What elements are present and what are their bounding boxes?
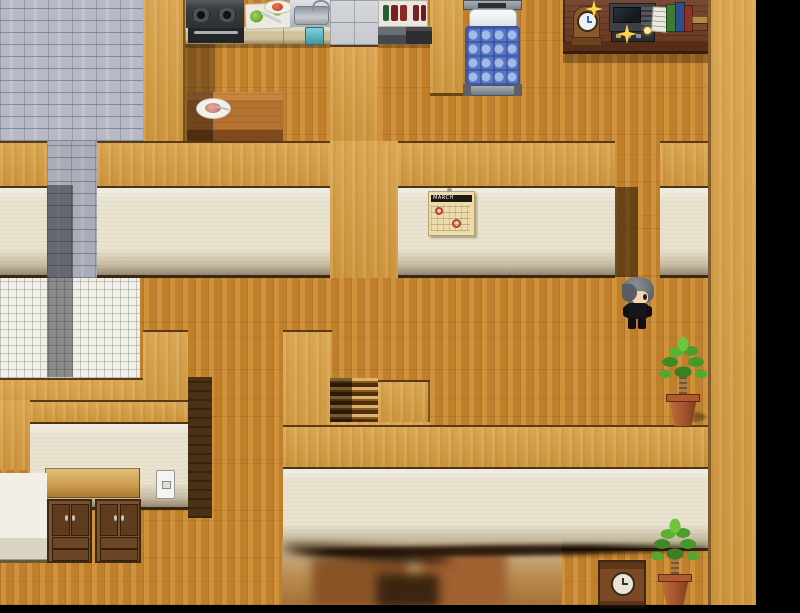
storage-room-wall-top bbox=[30, 400, 188, 422]
button bbox=[636, 34, 641, 38]
plant-pot bbox=[668, 402, 698, 426]
calendar-circled-date bbox=[452, 219, 461, 228]
wall-strip-center-upper bbox=[330, 45, 378, 141]
stove[interactable] bbox=[186, 0, 244, 28]
under-desk-shadow bbox=[563, 53, 712, 63]
floor-clock[interactable] bbox=[598, 560, 646, 610]
plant-leaves bbox=[658, 332, 708, 384]
character-eye bbox=[643, 294, 647, 300]
stairs-shadow bbox=[330, 378, 352, 422]
lower-room-wall-top bbox=[283, 425, 710, 467]
cabinet-drawer bbox=[100, 549, 138, 561]
character-leg bbox=[638, 318, 646, 329]
cabinet-right[interactable] bbox=[95, 499, 141, 563]
books[interactable] bbox=[666, 2, 706, 30]
potted-plant[interactable] bbox=[658, 332, 708, 427]
bottle-shelf[interactable] bbox=[378, 0, 428, 27]
character-arm bbox=[646, 306, 652, 317]
cabinet-drawer bbox=[52, 549, 89, 561]
bottle bbox=[413, 5, 419, 21]
oven-front[interactable] bbox=[188, 28, 244, 43]
game-viewport[interactable]: MARCH bbox=[0, 0, 800, 613]
mantel-clock-base bbox=[571, 37, 602, 46]
calendar-circled-date bbox=[435, 207, 443, 215]
plant-leaves bbox=[650, 514, 700, 566]
tomato bbox=[272, 3, 283, 11]
lower-wall-right-of-stairs bbox=[378, 380, 430, 423]
mantel-clock[interactable] bbox=[571, 6, 600, 44]
potted-plant[interactable] bbox=[650, 514, 700, 607]
water-bin[interactable] bbox=[305, 27, 324, 45]
book-stack bbox=[692, 23, 708, 31]
plant-pot-rim bbox=[666, 394, 700, 402]
character-bang bbox=[622, 284, 637, 301]
wall-face-mid bbox=[97, 186, 332, 278]
food-plate[interactable] bbox=[196, 98, 231, 119]
cabinet-handle bbox=[72, 515, 75, 521]
bed-post bbox=[463, 84, 471, 96]
sink[interactable] bbox=[290, 0, 332, 27]
cabinet-handle bbox=[65, 515, 68, 521]
bed-mattress bbox=[465, 26, 520, 87]
wall-strip-bed-left bbox=[430, 0, 463, 96]
stove-burner bbox=[192, 8, 210, 22]
wall-face-far-right bbox=[660, 186, 708, 278]
bed-label bbox=[478, 3, 506, 8]
wall-strip-kitchen-left bbox=[143, 0, 185, 141]
bottle bbox=[400, 5, 407, 21]
void-bottom bbox=[0, 605, 756, 613]
character-leg bbox=[628, 318, 636, 329]
oven-handle bbox=[194, 31, 238, 34]
white-counter[interactable] bbox=[0, 473, 47, 563]
plant-pot-rim bbox=[658, 574, 692, 582]
bottle bbox=[421, 5, 426, 21]
doorway-shadow bbox=[615, 187, 638, 277]
wall-top-mid bbox=[97, 141, 332, 186]
character-arm bbox=[623, 306, 629, 317]
stove-burner bbox=[218, 8, 236, 22]
wall-strip-center-lower bbox=[330, 141, 398, 278]
cabinet-handle bbox=[114, 515, 117, 521]
cabinet-drawer bbox=[52, 537, 89, 549]
plant-pot bbox=[660, 582, 690, 605]
stone-floor bbox=[0, 0, 143, 141]
tomato-plate[interactable] bbox=[264, 0, 292, 14]
void-right bbox=[756, 0, 800, 613]
device-panel bbox=[641, 7, 652, 27]
bottle bbox=[383, 5, 389, 21]
stone-blocks bbox=[330, 0, 378, 45]
corridor-shadow bbox=[47, 185, 73, 377]
player-sprite[interactable] bbox=[620, 275, 655, 331]
cabinet-handle bbox=[121, 515, 124, 521]
wall-top-right bbox=[398, 141, 615, 186]
clock-face bbox=[611, 572, 635, 596]
dark-counter-shelf bbox=[378, 27, 406, 35]
light-switch-toggle bbox=[162, 481, 171, 489]
floor-clock-top bbox=[600, 562, 644, 569]
bottle bbox=[391, 5, 398, 21]
cabinet-left[interactable] bbox=[47, 499, 92, 563]
calendar-pin bbox=[447, 188, 452, 192]
light-switch[interactable] bbox=[156, 470, 175, 499]
dark-counter bbox=[378, 27, 432, 44]
calendar-header: MARCH bbox=[431, 195, 472, 202]
sparkle-dot-icon bbox=[644, 27, 651, 34]
storage-counter[interactable] bbox=[45, 468, 140, 498]
dark-counter-oven bbox=[406, 31, 432, 44]
device-screen bbox=[613, 7, 641, 23]
bed-post bbox=[514, 84, 522, 96]
wall-calendar[interactable]: MARCH bbox=[428, 191, 475, 236]
dining-table[interactable] bbox=[187, 92, 283, 141]
wall-face-left bbox=[0, 186, 47, 278]
bed[interactable] bbox=[463, 0, 522, 96]
wall-top-far-right bbox=[660, 141, 712, 186]
room-edge-dark-strip bbox=[188, 377, 212, 518]
wall-top-left bbox=[0, 141, 47, 186]
cabinet-drawer bbox=[100, 537, 138, 549]
faucet bbox=[312, 0, 330, 11]
right-wall-frame bbox=[708, 0, 756, 605]
